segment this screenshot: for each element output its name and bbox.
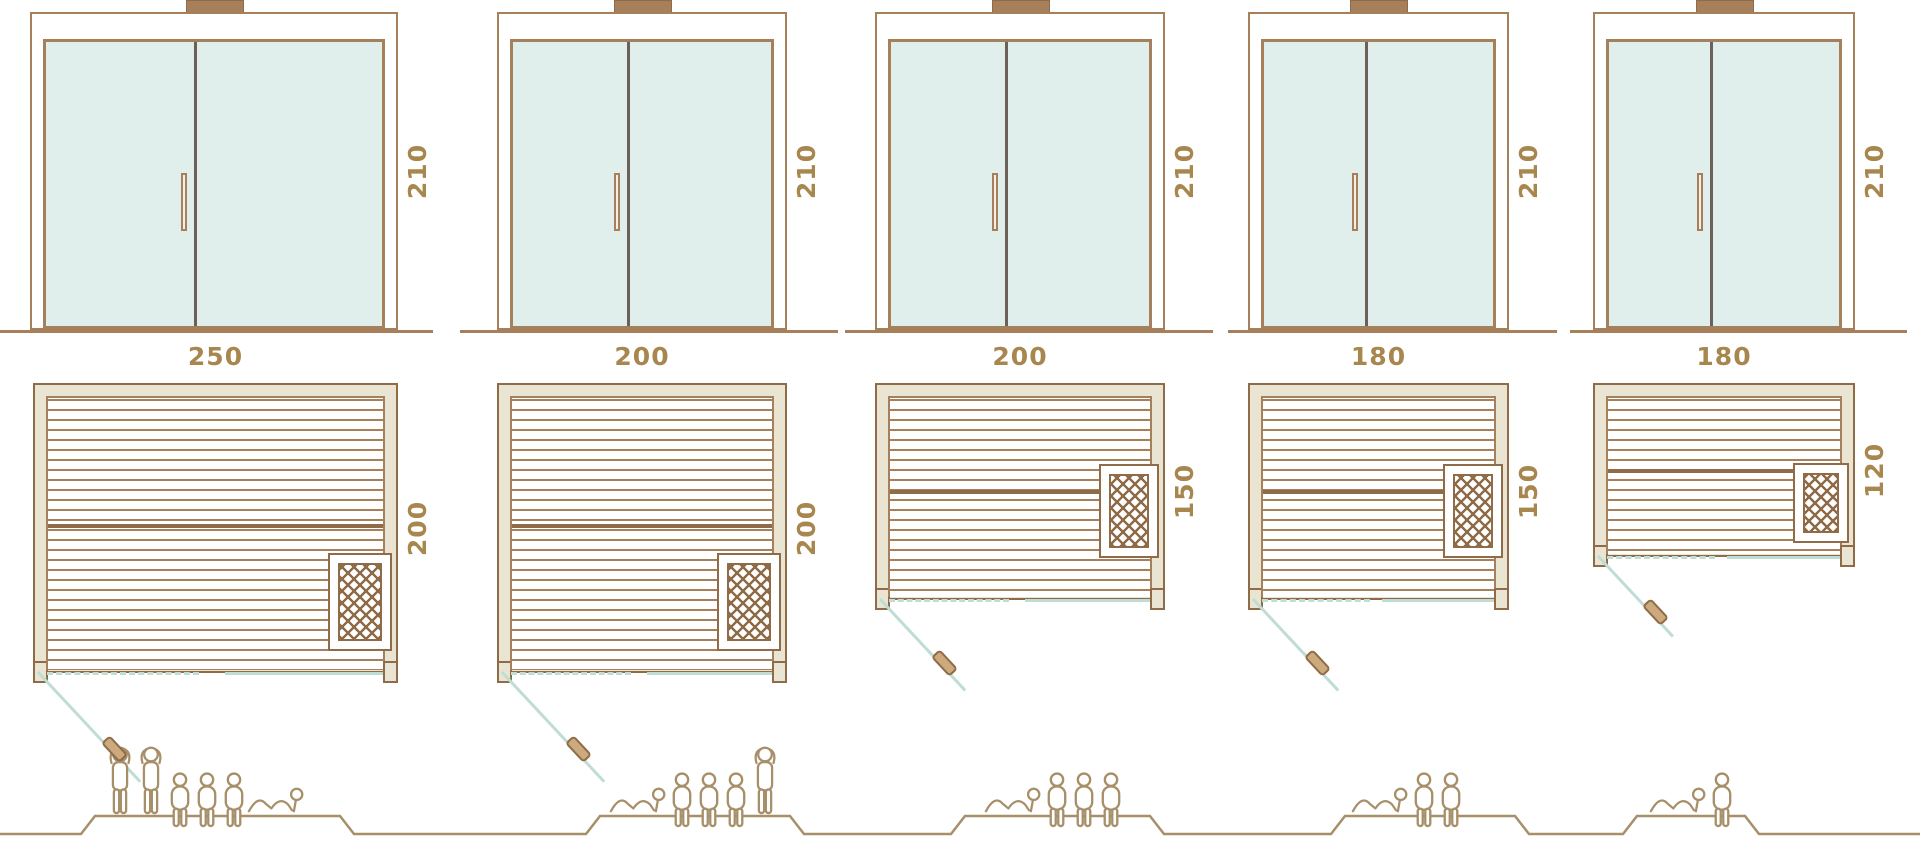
capacity-figures — [103, 744, 308, 816]
door-knob-icon — [1642, 598, 1669, 626]
ground-line — [1570, 330, 1907, 333]
person-sitting-icon — [1707, 772, 1737, 828]
person-lying-icon — [1350, 785, 1412, 815]
sauna-front-elevation — [1593, 12, 1855, 330]
sauna-plan-view — [1593, 383, 1855, 557]
depth-dimension-label: 120 — [1857, 383, 1893, 557]
height-dimension-label: 210 — [1857, 12, 1893, 330]
heater-box — [1099, 464, 1159, 558]
sauna-size-diagram: 250 210 200 200 210 — [0, 0, 1920, 856]
person-lying-icon — [1648, 785, 1710, 815]
door-swing-line — [1597, 555, 1674, 637]
capacity-figures — [608, 744, 782, 816]
person-sitting-icon — [721, 772, 751, 828]
person-lying-icon — [983, 785, 1045, 815]
person-sitting-icon — [1069, 772, 1099, 828]
person-lying-icon — [246, 785, 308, 815]
door-handle-icon — [1697, 173, 1703, 231]
front-wall-line — [1727, 556, 1841, 559]
heater-crosshatch-icon — [1109, 474, 1149, 548]
person-sitting-icon — [219, 772, 249, 828]
person-lying-icon — [608, 785, 670, 815]
person-sitting-icon — [694, 772, 724, 828]
door-divider-line — [1710, 42, 1713, 326]
person-sitting-icon — [192, 772, 222, 828]
person-sitting-icon — [165, 772, 195, 828]
platform-line — [0, 816, 1920, 834]
heater-box — [1793, 463, 1849, 543]
door-opening-dashed-line — [1607, 556, 1715, 559]
person-sitting-icon — [1409, 772, 1439, 828]
person-standing-icon — [748, 744, 782, 816]
heater-crosshatch-icon — [727, 563, 771, 641]
heater-crosshatch-icon — [1453, 474, 1493, 548]
person-standing-icon — [134, 744, 168, 816]
person-sitting-icon — [1042, 772, 1072, 828]
heater-box — [717, 553, 781, 651]
person-sitting-icon — [1436, 772, 1466, 828]
capacity-figures — [983, 772, 1126, 816]
glass-door-panels — [1606, 39, 1842, 328]
heater-box — [328, 553, 392, 651]
heater-box — [1443, 464, 1503, 558]
sauna-column-5: 180 210 120 — [0, 0, 1920, 856]
person-sitting-icon — [667, 772, 697, 828]
capacity-figures — [1648, 772, 1737, 816]
heater-crosshatch-icon — [338, 563, 382, 641]
width-dimension-label: 180 — [1593, 338, 1855, 374]
person-sitting-icon — [1096, 772, 1126, 828]
capacity-figures — [1350, 772, 1466, 816]
heater-crosshatch-icon — [1803, 473, 1839, 533]
